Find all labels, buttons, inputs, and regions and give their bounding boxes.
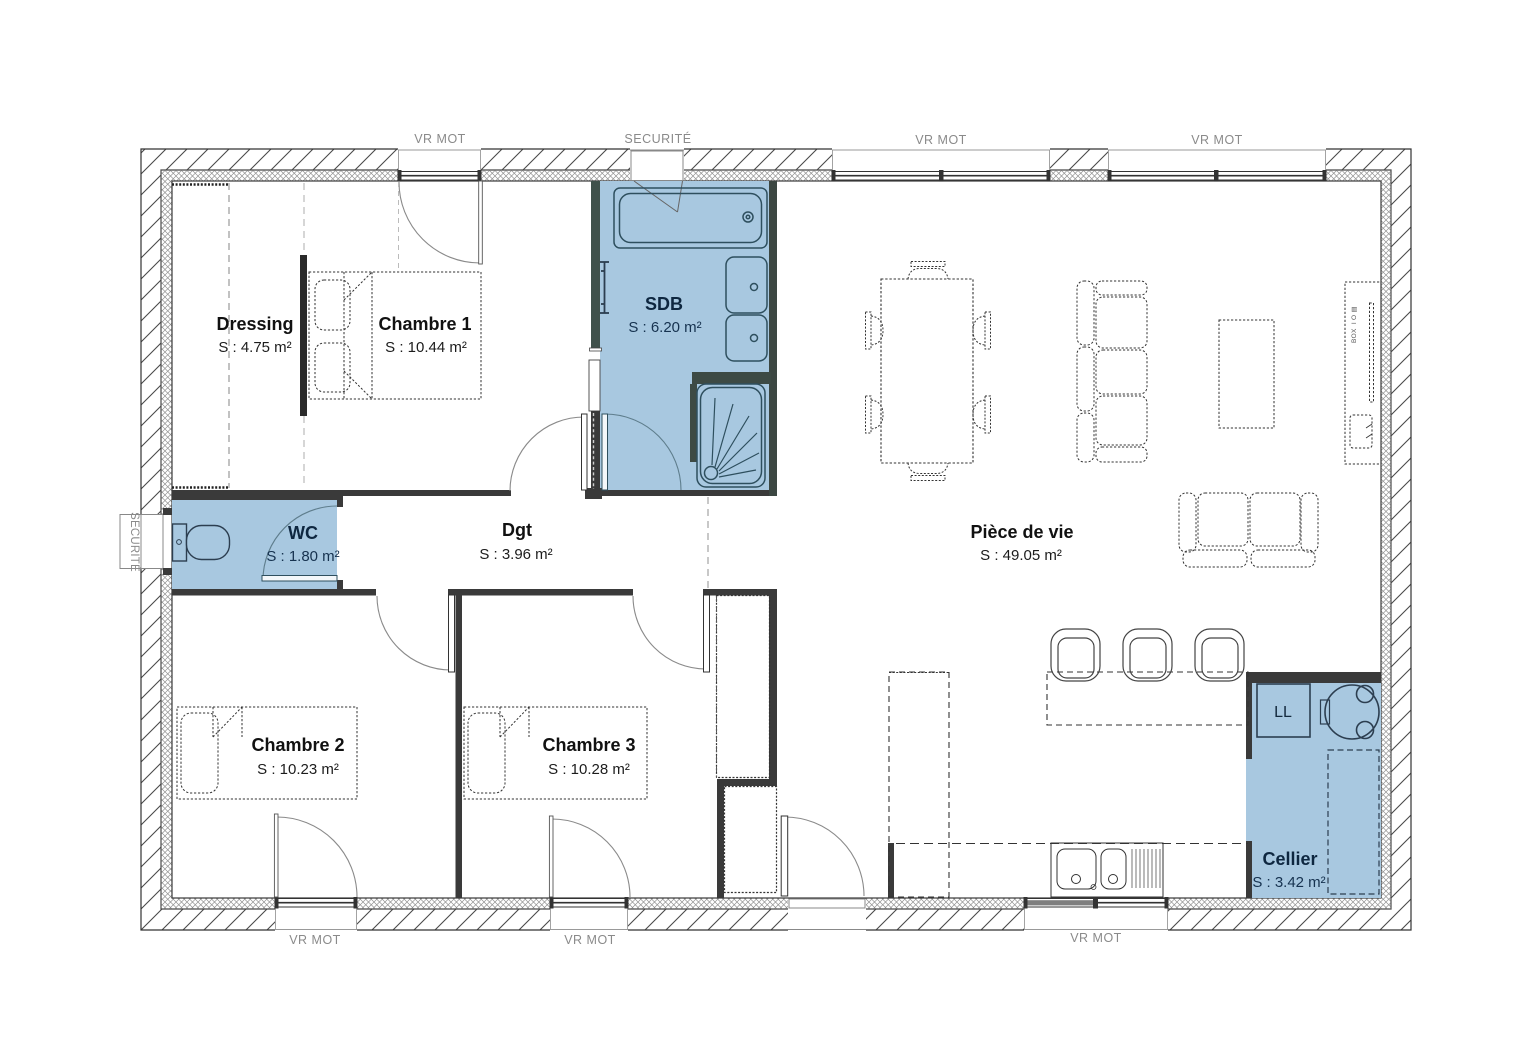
svg-text:Dgt: Dgt xyxy=(502,520,532,540)
svg-text:S : 6.20 m²: S : 6.20 m² xyxy=(628,319,701,336)
svg-text:Chambre 3: Chambre 3 xyxy=(542,735,635,755)
svg-text:SECURITÉ: SECURITÉ xyxy=(128,512,141,572)
svg-text:SDB: SDB xyxy=(645,294,683,314)
svg-text:SECURITÉ: SECURITÉ xyxy=(624,131,691,146)
svg-text:VR MOT: VR MOT xyxy=(915,133,967,147)
svg-text:S : 10.44 m²: S : 10.44 m² xyxy=(385,339,467,356)
svg-text:VR MOT: VR MOT xyxy=(1070,931,1122,945)
svg-text:VR MOT: VR MOT xyxy=(564,933,616,947)
svg-text:LL: LL xyxy=(1274,704,1292,721)
svg-text:BOX I O ▤: BOX I O ▤ xyxy=(1351,306,1358,343)
svg-text:S : 3.42 m²: S : 3.42 m² xyxy=(1252,874,1325,891)
svg-text:VR MOT: VR MOT xyxy=(1191,133,1243,147)
svg-text:Chambre 2: Chambre 2 xyxy=(251,735,344,755)
svg-text:S : 49.05 m²: S : 49.05 m² xyxy=(980,547,1062,564)
svg-text:S : 4.75 m²: S : 4.75 m² xyxy=(218,339,291,356)
svg-text:Chambre 1: Chambre 1 xyxy=(378,314,471,334)
svg-text:Cellier: Cellier xyxy=(1262,849,1317,869)
svg-text:Dressing: Dressing xyxy=(216,314,293,334)
svg-text:VR MOT: VR MOT xyxy=(289,933,341,947)
svg-text:Pièce de vie: Pièce de vie xyxy=(970,522,1073,542)
svg-text:S : 3.96 m²: S : 3.96 m² xyxy=(479,546,552,563)
svg-text:WC: WC xyxy=(288,523,318,543)
svg-text:S : 1.80 m²: S : 1.80 m² xyxy=(266,548,339,565)
svg-text:S : 10.23 m²: S : 10.23 m² xyxy=(257,761,339,778)
svg-text:VR MOT: VR MOT xyxy=(414,132,466,146)
svg-text:S : 10.28 m²: S : 10.28 m² xyxy=(548,761,630,778)
